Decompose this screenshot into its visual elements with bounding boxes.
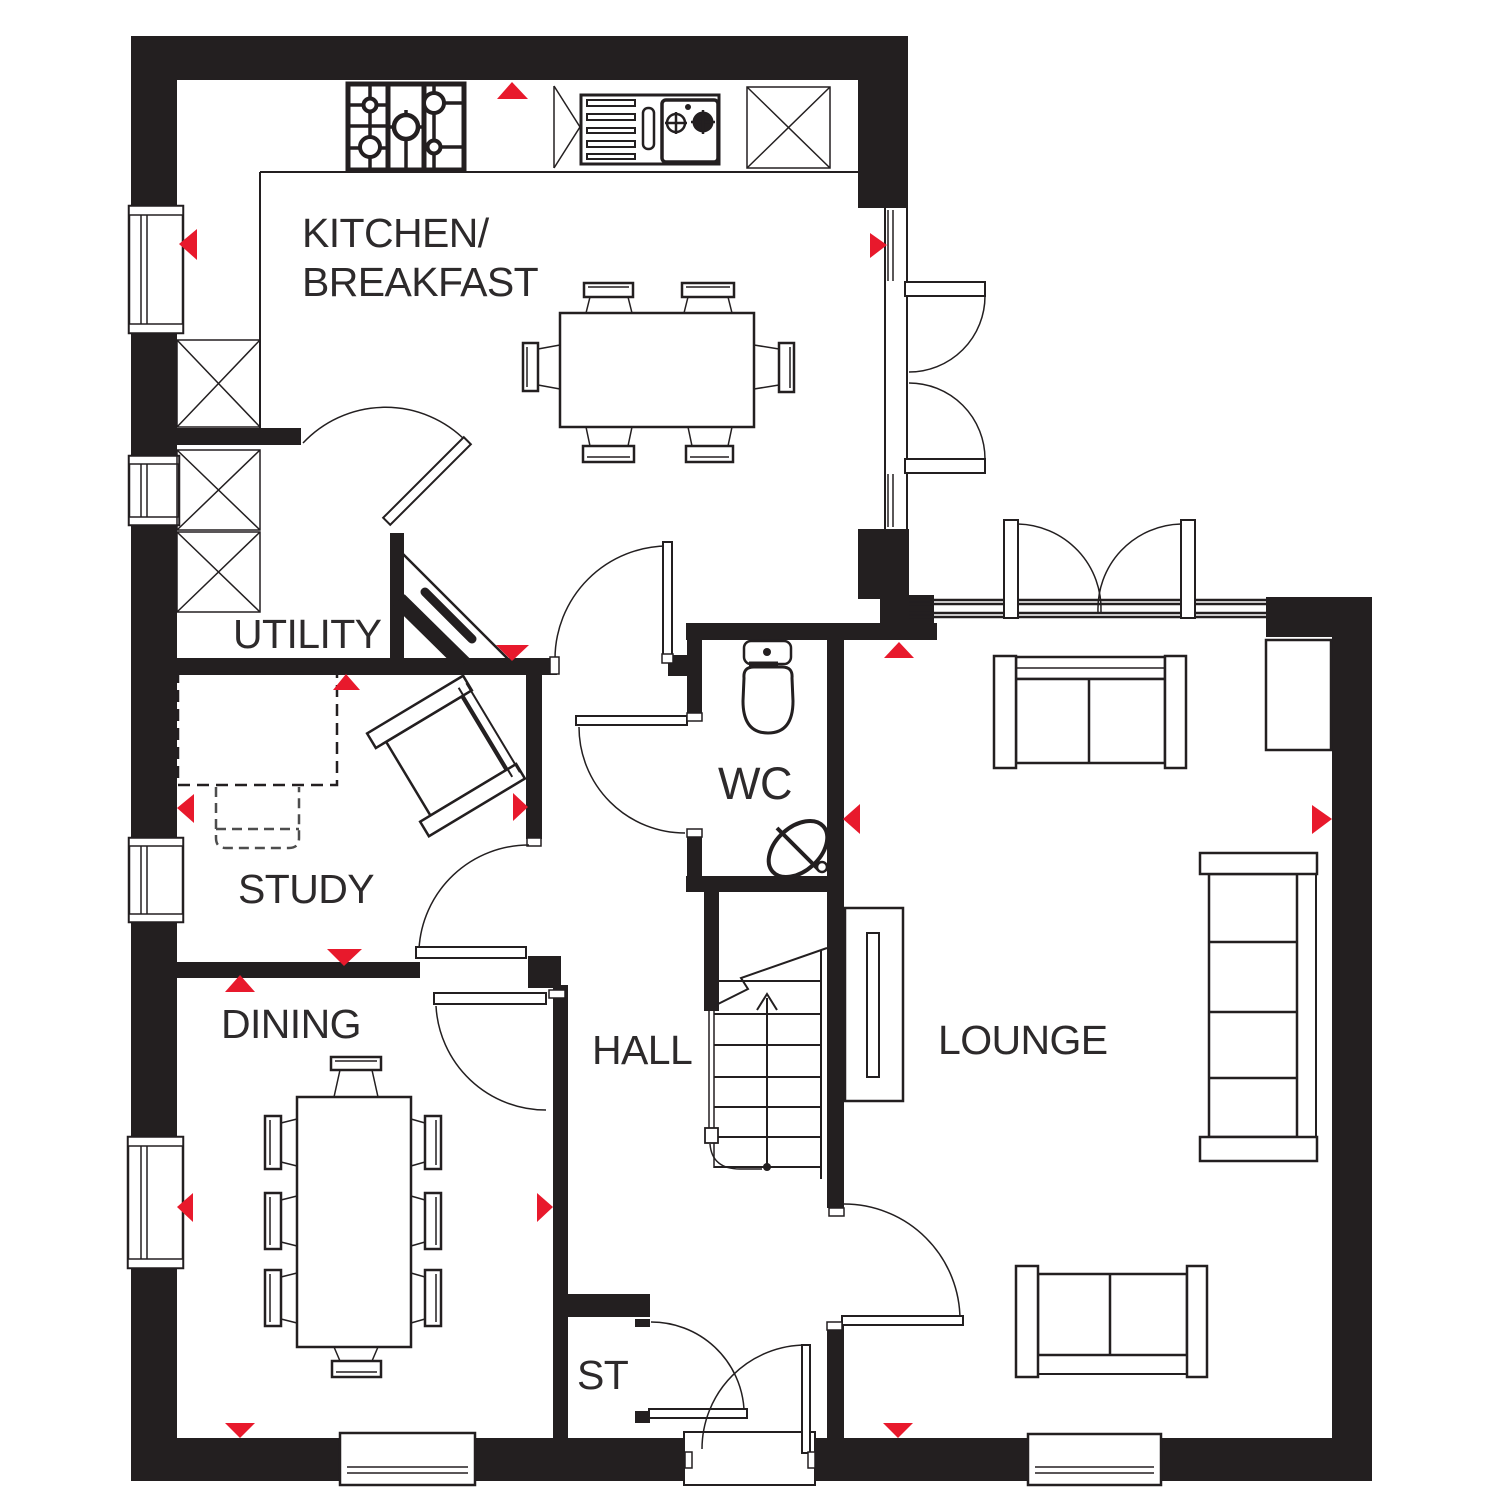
svg-text:LOUNGE: LOUNGE <box>938 1017 1108 1063</box>
svg-text:WC: WC <box>718 758 792 809</box>
svg-text:STUDY: STUDY <box>238 866 374 912</box>
svg-text:KITCHEN/: KITCHEN/ <box>302 210 490 256</box>
svg-text:DINING: DINING <box>221 1001 361 1047</box>
svg-text:ST: ST <box>577 1352 629 1398</box>
svg-text:UTILITY: UTILITY <box>233 611 382 657</box>
svg-text:HALL: HALL <box>592 1027 692 1073</box>
svg-text:BREAKFAST: BREAKFAST <box>302 259 539 305</box>
